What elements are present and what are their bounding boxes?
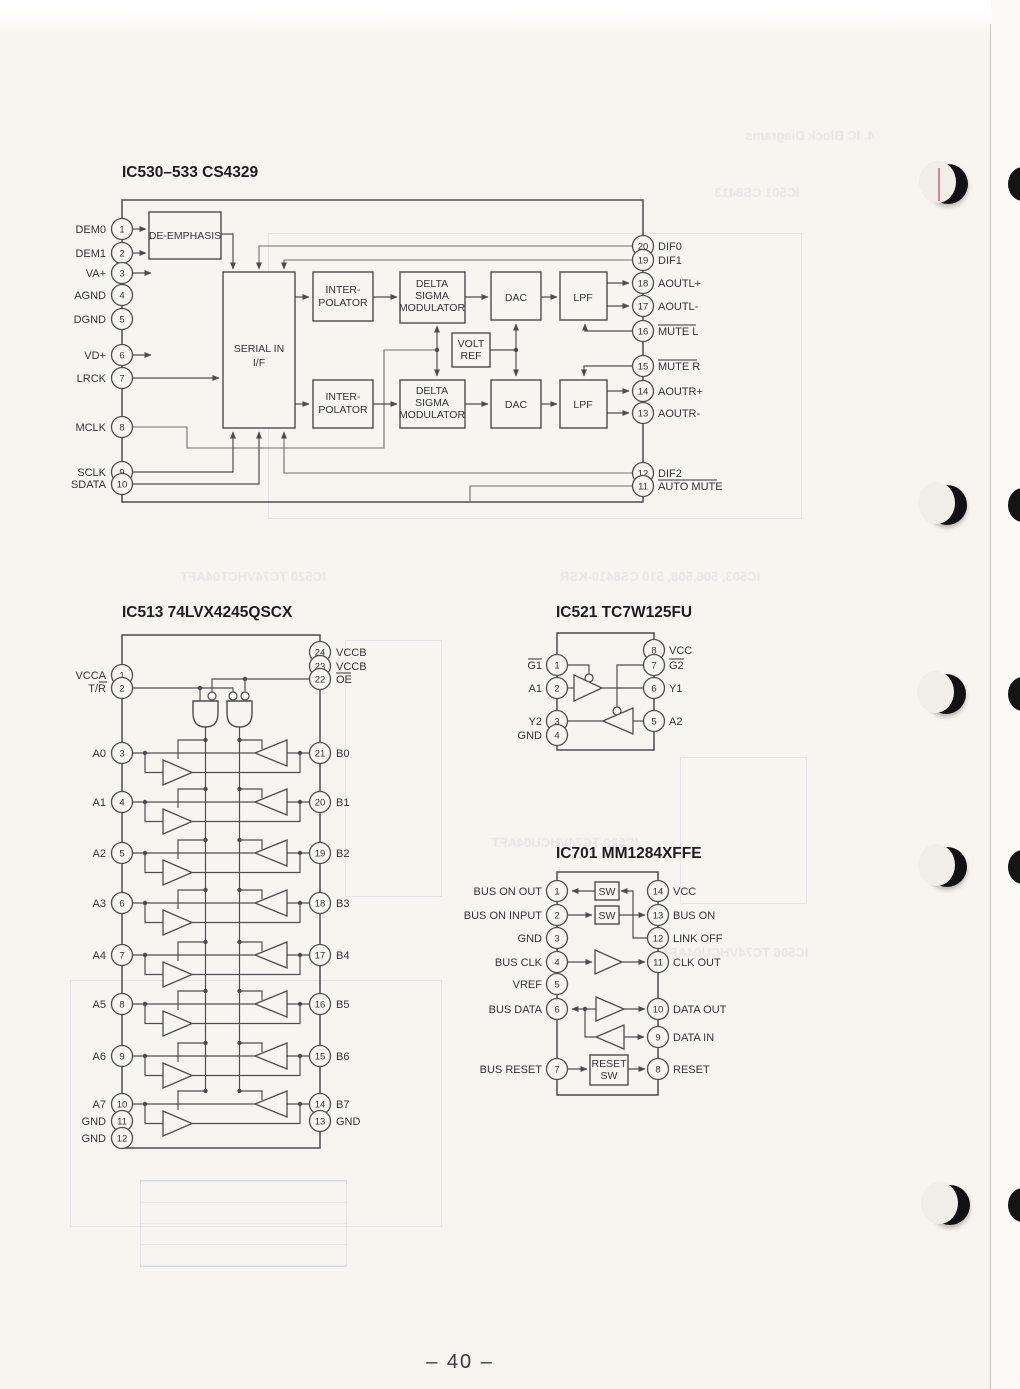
ic530-cs4329-diagram: IC530–533 CS4329	[71, 164, 723, 502]
pin: 2DEM1	[75, 243, 132, 264]
pin: 2BUS ON INPUT	[464, 905, 568, 926]
pin: 5A2	[644, 711, 683, 732]
svg-text:A5: A5	[93, 999, 106, 1011]
ic513-wires	[122, 635, 320, 1148]
svg-text:A1: A1	[529, 683, 542, 695]
svg-text:MODULATOR: MODULATOR	[399, 409, 466, 421]
svg-text:8: 8	[119, 1000, 124, 1011]
svg-text:B4: B4	[336, 950, 349, 962]
svg-text:VD+: VD+	[84, 350, 106, 362]
pin: 8A5	[93, 994, 133, 1015]
svg-text:3: 3	[119, 269, 124, 280]
svg-text:AOUTR-: AOUTR-	[658, 408, 701, 420]
punch-hole	[927, 847, 967, 887]
svg-text:7: 7	[651, 661, 656, 672]
svg-text:A1: A1	[93, 797, 106, 809]
punch-hole	[928, 164, 968, 204]
pin: 7LRCK	[77, 368, 133, 389]
pin: 1DEM0	[75, 219, 132, 240]
pin: 7G2	[644, 655, 685, 676]
svg-text:7: 7	[119, 374, 124, 385]
ic701-blocks: SW SW RESET SW	[590, 882, 628, 1085]
svg-text:6: 6	[119, 899, 124, 910]
svg-text:DAC: DAC	[505, 399, 528, 411]
svg-text:RESET: RESET	[673, 1064, 710, 1076]
svg-text:7: 7	[554, 1065, 559, 1076]
pin: 13GND	[310, 1111, 361, 1132]
pin: 8RESET	[648, 1059, 710, 1080]
pin: 19B2	[310, 843, 350, 864]
pin: 11CLK OUT	[648, 952, 721, 973]
svg-text:INTER-: INTER-	[326, 391, 362, 403]
scan-color-streak	[938, 168, 940, 201]
pin: 1G1	[527, 655, 567, 676]
svg-text:9: 9	[655, 1033, 660, 1044]
pin: 5A2	[93, 843, 133, 864]
svg-text:22: 22	[315, 675, 326, 686]
svg-text:12: 12	[117, 1134, 128, 1145]
svg-text:VCC: VCC	[669, 645, 692, 657]
svg-text:RESET: RESET	[591, 1058, 627, 1070]
svg-text:4: 4	[554, 731, 559, 742]
pin: 4AGND	[74, 285, 132, 306]
svg-text:B5: B5	[336, 999, 349, 1011]
svg-text:6: 6	[119, 351, 124, 362]
ic701-right-pins: 14VCC 13BUS ON 12LINK OFF 11CLK OUT 10DA…	[648, 881, 727, 1080]
svg-text:VCCB: VCCB	[336, 661, 367, 673]
svg-text:A4: A4	[93, 950, 106, 962]
pin: 1BUS ON OUT	[474, 881, 568, 902]
pin: 9DATA IN	[648, 1027, 715, 1048]
svg-text:SDATA: SDATA	[71, 479, 107, 491]
pin: 16B5	[310, 994, 350, 1015]
svg-text:14: 14	[315, 1100, 326, 1111]
svg-text:B3: B3	[336, 898, 349, 910]
page-edge-line	[990, 24, 991, 1389]
svg-text:LPF: LPF	[573, 292, 592, 304]
svg-text:1: 1	[119, 225, 124, 236]
schematic-canvas: IC530–533 CS4329	[0, 0, 1020, 1389]
svg-text:9: 9	[119, 1052, 124, 1063]
svg-text:POLATOR: POLATOR	[318, 404, 368, 416]
svg-text:SW: SW	[599, 910, 616, 922]
svg-text:2: 2	[119, 684, 124, 695]
pin: 3A0	[93, 743, 133, 764]
pin: 13AOUTR-	[633, 403, 701, 424]
svg-text:DEM1: DEM1	[75, 248, 106, 260]
pin: 6VD+	[84, 345, 132, 366]
svg-text:2: 2	[119, 249, 124, 260]
svg-text:B1: B1	[336, 797, 349, 809]
svg-text:2: 2	[554, 684, 559, 695]
pin: 3GND	[518, 928, 568, 949]
svg-text:DEM0: DEM0	[75, 224, 106, 236]
svg-text:BUS RESET: BUS RESET	[480, 1064, 543, 1076]
svg-text:SIGMA: SIGMA	[415, 397, 449, 409]
svg-text:3: 3	[554, 934, 559, 945]
ic530-left-pins: 1DEM0 2DEM1 3VA+ 4AGND 5DGND 6VD+ 7LRCK …	[71, 219, 133, 495]
scanned-manual-page: 4. IC Block Diagrams IC501 CS8413 IC520 …	[0, 0, 1020, 1389]
svg-text:I/F: I/F	[253, 357, 265, 369]
svg-text:DIF1: DIF1	[658, 255, 682, 267]
svg-text:OE: OE	[336, 674, 352, 686]
svg-text:5: 5	[119, 315, 124, 326]
pin: 14VCC	[648, 881, 697, 902]
svg-text:18: 18	[315, 899, 326, 910]
svg-text:POLATOR: POLATOR	[318, 297, 368, 309]
svg-text:B7: B7	[336, 1099, 349, 1111]
svg-text:VOLT: VOLT	[458, 338, 485, 350]
ic530-blocks: DE-EMPHASIS SERIAL IN I/F INTER- POLATOR…	[149, 212, 607, 428]
svg-text:17: 17	[315, 951, 326, 962]
svg-text:SIGMA: SIGMA	[415, 290, 449, 302]
svg-text:6: 6	[651, 684, 656, 695]
svg-text:AOUTR+: AOUTR+	[658, 386, 703, 398]
svg-text:14: 14	[653, 887, 664, 898]
svg-text:6: 6	[554, 1005, 559, 1016]
svg-text:19: 19	[638, 256, 649, 267]
pin: 7A4	[93, 945, 133, 966]
svg-text:GND: GND	[82, 1116, 107, 1128]
ic701-diagram: IC701 MM1284XFFE	[464, 845, 727, 1095]
ic701-title: IC701 MM1284XFFE	[556, 845, 702, 862]
svg-text:GND: GND	[336, 1116, 361, 1128]
pin: 17B4	[310, 945, 350, 966]
pin: 17AOUTL-	[633, 296, 699, 317]
svg-text:T/R: T/R	[88, 683, 106, 695]
svg-text:AOUTL-: AOUTL-	[658, 301, 699, 313]
svg-text:B0: B0	[336, 748, 349, 760]
svg-text:DGND: DGND	[74, 314, 106, 326]
svg-text:12: 12	[653, 934, 664, 945]
pin: 3VA+	[86, 263, 133, 284]
svg-text:DATA OUT: DATA OUT	[673, 1004, 727, 1016]
svg-text:13: 13	[653, 911, 664, 922]
pin: 4GND	[518, 725, 568, 746]
svg-text:10: 10	[653, 1005, 664, 1016]
svg-text:20: 20	[315, 798, 326, 809]
svg-text:DATA IN: DATA IN	[673, 1032, 714, 1044]
svg-text:SERIAL IN: SERIAL IN	[234, 343, 284, 355]
pin: 9A6	[93, 1046, 133, 1067]
pin: 6BUS DATA	[489, 999, 568, 1020]
svg-text:1: 1	[554, 661, 559, 672]
svg-text:BUS ON OUT: BUS ON OUT	[474, 886, 543, 898]
page-number: – 40 –	[395, 1351, 525, 1374]
svg-text:DAC: DAC	[505, 292, 528, 304]
svg-text:VA+: VA+	[86, 268, 106, 280]
svg-text:LRCK: LRCK	[77, 373, 107, 385]
pin: 7BUS RESET	[480, 1059, 568, 1080]
pin: 14AOUTR+	[633, 381, 703, 402]
svg-text:2: 2	[554, 911, 559, 922]
ic513-title: IC513 74LVX4245QSCX	[122, 604, 293, 621]
svg-text:19: 19	[315, 849, 326, 860]
svg-text:5: 5	[119, 849, 124, 860]
pin: 6A3	[93, 893, 133, 914]
ic521-diagram: IC521 TC7W125FU 1G1 2A1 3Y2 4GND	[518, 604, 693, 750]
svg-text:MODULATOR: MODULATOR	[399, 302, 466, 314]
punch-hole	[927, 485, 967, 525]
svg-text:Y1: Y1	[669, 683, 682, 695]
ic513-right-pins: 24VCCB 23VCCB 22OE 21B0 20B1 19B2 18B3 1…	[310, 642, 367, 1132]
svg-text:13: 13	[638, 409, 649, 420]
svg-text:AOUTL+: AOUTL+	[658, 278, 701, 290]
svg-text:DE-EMPHASIS: DE-EMPHASIS	[149, 230, 221, 242]
pin: 8MCLK	[75, 417, 132, 438]
punch-hole	[930, 1185, 970, 1225]
pin: 15MUTE R	[633, 356, 701, 377]
svg-text:18: 18	[638, 279, 649, 290]
ic521-right-pins: 8VCC 7G2 6Y1 5A2	[644, 640, 693, 732]
svg-text:BUS DATA: BUS DATA	[489, 1004, 543, 1016]
svg-text:16: 16	[315, 1000, 326, 1011]
pin: 4BUS CLK	[495, 952, 568, 973]
ic521-wires	[557, 633, 654, 750]
svg-text:VCCA: VCCA	[75, 670, 106, 682]
svg-text:GND: GND	[518, 933, 543, 945]
pin: 21B0	[310, 743, 350, 764]
svg-text:VCC: VCC	[673, 886, 696, 898]
svg-text:LPF: LPF	[573, 399, 592, 411]
svg-text:5: 5	[554, 980, 559, 991]
svg-text:A2: A2	[93, 848, 106, 860]
svg-text:4: 4	[119, 798, 124, 809]
svg-text:BUS CLK: BUS CLK	[495, 957, 543, 969]
svg-text:BUS ON: BUS ON	[673, 910, 715, 922]
svg-text:15: 15	[315, 1052, 326, 1063]
svg-text:LINK OFF: LINK OFF	[673, 933, 723, 945]
svg-text:10: 10	[117, 1100, 128, 1111]
svg-text:21: 21	[315, 749, 326, 760]
svg-text:A6: A6	[93, 1051, 106, 1063]
svg-text:15: 15	[638, 362, 649, 373]
svg-text:SW: SW	[601, 1070, 618, 1082]
svg-text:DELTA: DELTA	[416, 385, 448, 397]
svg-text:VREF: VREF	[513, 979, 543, 991]
pin: 12GND	[82, 1128, 133, 1149]
svg-text:17: 17	[638, 302, 649, 313]
svg-text:13: 13	[315, 1117, 326, 1128]
pin: 13BUS ON	[648, 905, 716, 926]
svg-text:A3: A3	[93, 898, 106, 910]
svg-text:5: 5	[651, 717, 656, 728]
svg-text:G1: G1	[527, 660, 542, 672]
svg-text:7: 7	[119, 951, 124, 962]
pin: 6Y1	[644, 678, 683, 699]
svg-text:VCCB: VCCB	[336, 647, 367, 659]
svg-text:A2: A2	[669, 716, 682, 728]
pin: 4A1	[93, 792, 133, 813]
svg-text:G2: G2	[669, 660, 684, 672]
pin: 5DGND	[74, 309, 133, 330]
svg-text:DELTA: DELTA	[416, 278, 448, 290]
ic530-right-pins: 20DIF0 19DIF1 18AOUTL+ 17AOUTL- 16MUTE L…	[633, 236, 723, 497]
svg-text:4: 4	[119, 291, 124, 302]
svg-text:GND: GND	[518, 730, 543, 742]
svg-text:DIF0: DIF0	[658, 241, 682, 253]
svg-text:SCLK: SCLK	[77, 467, 106, 479]
svg-text:MUTE R: MUTE R	[658, 361, 700, 373]
svg-text:DIF2: DIF2	[658, 468, 682, 480]
svg-text:CLK OUT: CLK OUT	[673, 957, 721, 969]
pin: 18AOUTL+	[633, 273, 702, 294]
svg-text:MUTE L: MUTE L	[658, 326, 698, 338]
svg-text:10: 10	[117, 480, 128, 491]
svg-text:14: 14	[638, 387, 649, 398]
svg-text:8: 8	[119, 423, 124, 434]
pin: 12LINK OFF	[648, 928, 723, 949]
svg-text:GND: GND	[82, 1133, 107, 1145]
ic513-channel-rows	[133, 738, 309, 1136]
svg-text:3: 3	[119, 749, 124, 760]
pin: 20B1	[310, 792, 350, 813]
svg-text:A7: A7	[93, 1099, 106, 1111]
svg-text:8: 8	[655, 1065, 660, 1076]
svg-text:AGND: AGND	[74, 290, 106, 302]
svg-text:AUTO MUTE: AUTO MUTE	[658, 481, 723, 493]
svg-text:Y2: Y2	[529, 716, 542, 728]
svg-text:B2: B2	[336, 848, 349, 860]
ic701-left-pins: 1BUS ON OUT 2BUS ON INPUT 3GND 4BUS CLK …	[464, 881, 568, 1080]
svg-text:REF: REF	[461, 350, 482, 362]
pin: 16MUTE L	[633, 321, 699, 342]
svg-text:11: 11	[653, 958, 663, 969]
punch-hole	[926, 674, 966, 714]
svg-text:MCLK: MCLK	[75, 422, 106, 434]
pin: 5VREF	[513, 974, 568, 995]
pin: 18B3	[310, 893, 350, 914]
svg-text:4: 4	[554, 958, 559, 969]
pin: 15B6	[310, 1046, 350, 1067]
pin: 2A1	[529, 678, 568, 699]
ic521-left-pins: 1G1 2A1 3Y2 4GND	[518, 655, 568, 746]
svg-text:11: 11	[638, 482, 648, 493]
svg-text:1: 1	[554, 887, 559, 898]
svg-text:16: 16	[638, 327, 649, 338]
svg-text:INTER-: INTER-	[326, 284, 362, 296]
svg-text:BUS ON INPUT: BUS ON INPUT	[464, 910, 543, 922]
svg-text:11: 11	[117, 1117, 127, 1128]
svg-text:SW: SW	[599, 886, 616, 898]
svg-text:B6: B6	[336, 1051, 349, 1063]
ic530-title: IC530–533 CS4329	[122, 164, 259, 181]
ic521-title: IC521 TC7W125FU	[556, 604, 692, 621]
pin: 10DATA OUT	[648, 999, 727, 1020]
svg-text:A0: A0	[93, 748, 106, 760]
ic513-diagram: IC513 74LVX4245QSCX	[75, 604, 366, 1149]
ic513-left-pins: 1VCCA 2 T/R 3A0 4A1 5A2 6A3 7A4 8A5 9A6 …	[75, 665, 132, 1149]
